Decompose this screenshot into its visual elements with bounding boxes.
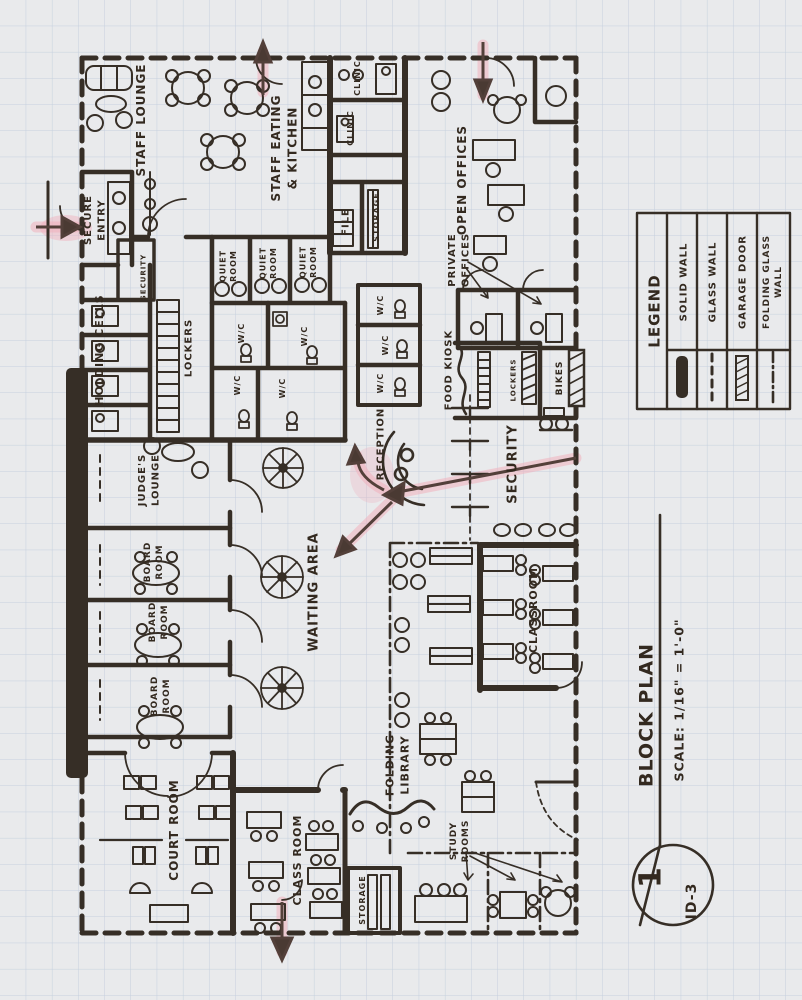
label-waiting-area: WAITING AREA [307,532,322,651]
legend-label-glass-wall: GLASS WALL [708,242,719,323]
label-clinic-1: CLINIC [353,60,362,96]
label-folding-library: FOLDINGLIBRARY [383,734,411,796]
block-plan-drawing: STAFF LOUNGESECUREENTRYSTAFF EATING& KIT… [0,0,802,1000]
label-wc-5: W/C [376,295,385,316]
label-storage-file: STORAGE [372,192,381,241]
drawing-title: BLOCK PLAN [636,643,658,787]
label-wc-7: W/C [376,373,385,394]
label-wc-6: W/C [381,335,390,356]
legend-heading: LEGEND [645,274,663,347]
label-security-main: SECURITY [506,424,521,503]
label-storage-small: STORAGE [358,875,367,924]
label-wc-1: W/C [237,323,246,344]
label-wc-3: W/C [233,375,242,396]
label-wc-2: W/C [300,326,309,347]
sheet-number: 1 [634,866,669,888]
sheet-id: ID-3 [684,883,700,920]
label-reception: RECEPTION [376,408,387,480]
solid-wall-left [66,368,88,778]
label-staff-lounge: STAFF LOUNGE [134,63,148,176]
label-holding-cells: HOLDING CELLS [93,294,106,405]
label-security-holding: SECURITY [139,254,147,300]
drawing-scale: SCALE: 1/16" = 1'-0" [671,619,686,782]
label-open-offices: OPEN OFFICES [455,125,469,235]
label-bikes: BIKES [555,361,565,396]
garage-door [569,350,584,406]
label-quiet-room-1: QUIETROOM [218,250,238,282]
label-lockers-bikes: LOCKERS [509,359,517,402]
label-food-kiosk: FOOD KIOSK [444,329,455,410]
legend-symbol-solid-wall [676,356,688,398]
label-clinic-2: CLINIC [346,110,355,146]
label-wc-4: W/C [278,378,287,399]
label-file-room: FILE [341,208,352,236]
label-classroom-left: CLASS ROOM [291,815,304,906]
label-court-room: COURT ROOM [167,779,181,880]
legend-label-garage-door: GARAGE DOOR [738,235,749,329]
label-quiet-room-2: QUIETROOM [258,247,278,279]
label-lockers: LOCKERS [184,319,195,377]
label-quiet-room-3: QUIETROOM [298,246,318,278]
label-classroom-right: CLASSROOM [527,567,540,653]
legend-label-solid-wall: SOLID WALL [679,243,690,322]
